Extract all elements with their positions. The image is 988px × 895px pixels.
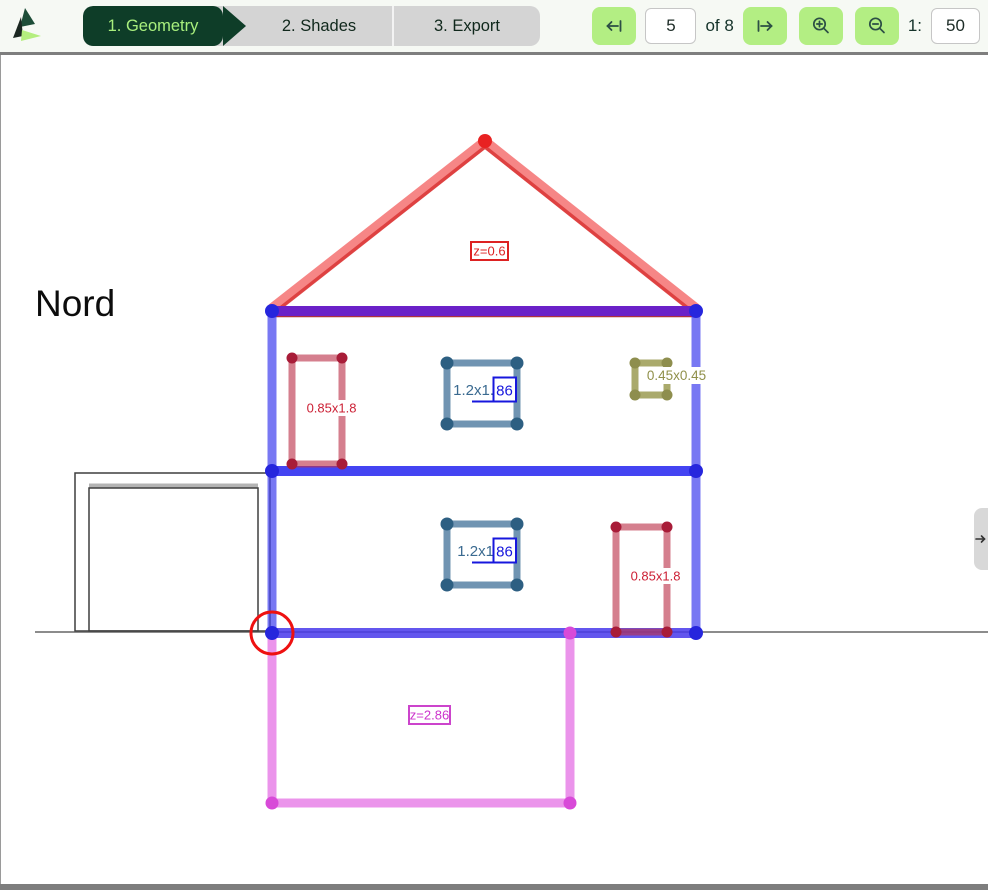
page-number-input[interactable] — [645, 8, 696, 44]
tab-export[interactable]: 3. Export — [394, 6, 540, 46]
step-tabs: 1. Geometry 2. Shades 3. Export — [83, 6, 540, 46]
window-upper-left-red[interactable]: 0.85x1.8 — [287, 353, 358, 470]
arrow-left-to-bar-icon — [602, 14, 626, 38]
magnifier-minus-icon — [865, 14, 889, 38]
canvas-bottom-bar — [0, 884, 988, 890]
dimension-edit-value: 86 — [496, 383, 513, 400]
arrow-right-to-bar-icon — [753, 14, 777, 38]
roof[interactable] — [272, 134, 696, 316]
window-dimension-label: 0.85x1.8 — [307, 401, 357, 416]
active-tab-arrow — [223, 6, 246, 46]
basement-top-right-point[interactable] — [564, 627, 577, 640]
arrow-right-icon — [975, 533, 987, 545]
prev-page-button[interactable] — [592, 7, 636, 45]
window-dimension-label: 0.45x0.45 — [647, 368, 706, 383]
window-dimension-label: 0.85x1.8 — [631, 569, 681, 584]
window-dimension-label: 1.2x1. — [453, 382, 494, 399]
pager-controls: of 8 — [592, 7, 980, 45]
tab-geometry[interactable]: 1. Geometry — [83, 6, 223, 46]
dimension-edit-value: 86 — [496, 544, 513, 561]
roof-height-label[interactable]: z=0.6 — [471, 242, 508, 260]
window-upper-center-blue[interactable]: 1.2x1. 86 — [441, 357, 524, 431]
scale-input[interactable] — [931, 8, 980, 44]
tab-shades[interactable]: 2. Shades — [246, 6, 392, 46]
window-lower-center-blue[interactable]: 1.2x1 86 — [441, 518, 524, 592]
svg-text:z=0.6: z=0.6 — [473, 244, 505, 259]
roof-apex-point[interactable] — [478, 134, 492, 148]
section-drawing: 0.85x1.8 1.2x1. 86 0.45x0.45 — [1, 55, 988, 884]
orientation-label: Nord — [35, 283, 115, 324]
drawing-canvas[interactable]: 0.85x1.8 1.2x1. 86 0.45x0.45 — [0, 55, 988, 884]
zoom-in-button[interactable] — [799, 7, 843, 45]
next-page-button[interactable] — [743, 7, 787, 45]
tab-export-label: 3. Export — [434, 17, 500, 36]
scale-prefix-label: 1: — [908, 16, 922, 36]
tab-geometry-label: 1. Geometry — [108, 17, 199, 36]
zoom-out-button[interactable] — [855, 7, 899, 45]
house-frame[interactable] — [265, 304, 703, 640]
svg-text:z=2.86: z=2.86 — [410, 708, 449, 723]
app-logo-icon — [8, 5, 44, 47]
window-lower-right-red[interactable]: 0.85x1.8 — [611, 522, 682, 638]
side-panel-toggle[interactable] — [974, 508, 988, 570]
window-dimension-label: 1.2x1 — [457, 543, 494, 560]
garage-outline — [75, 473, 270, 631]
page-count-label: of 8 — [705, 16, 733, 36]
toolbar: 1. Geometry 2. Shades 3. Export of 8 — [0, 0, 988, 52]
basement-depth-label[interactable]: z=2.86 — [409, 706, 450, 724]
tab-shades-label: 2. Shades — [282, 17, 356, 36]
magnifier-plus-icon — [809, 14, 833, 38]
